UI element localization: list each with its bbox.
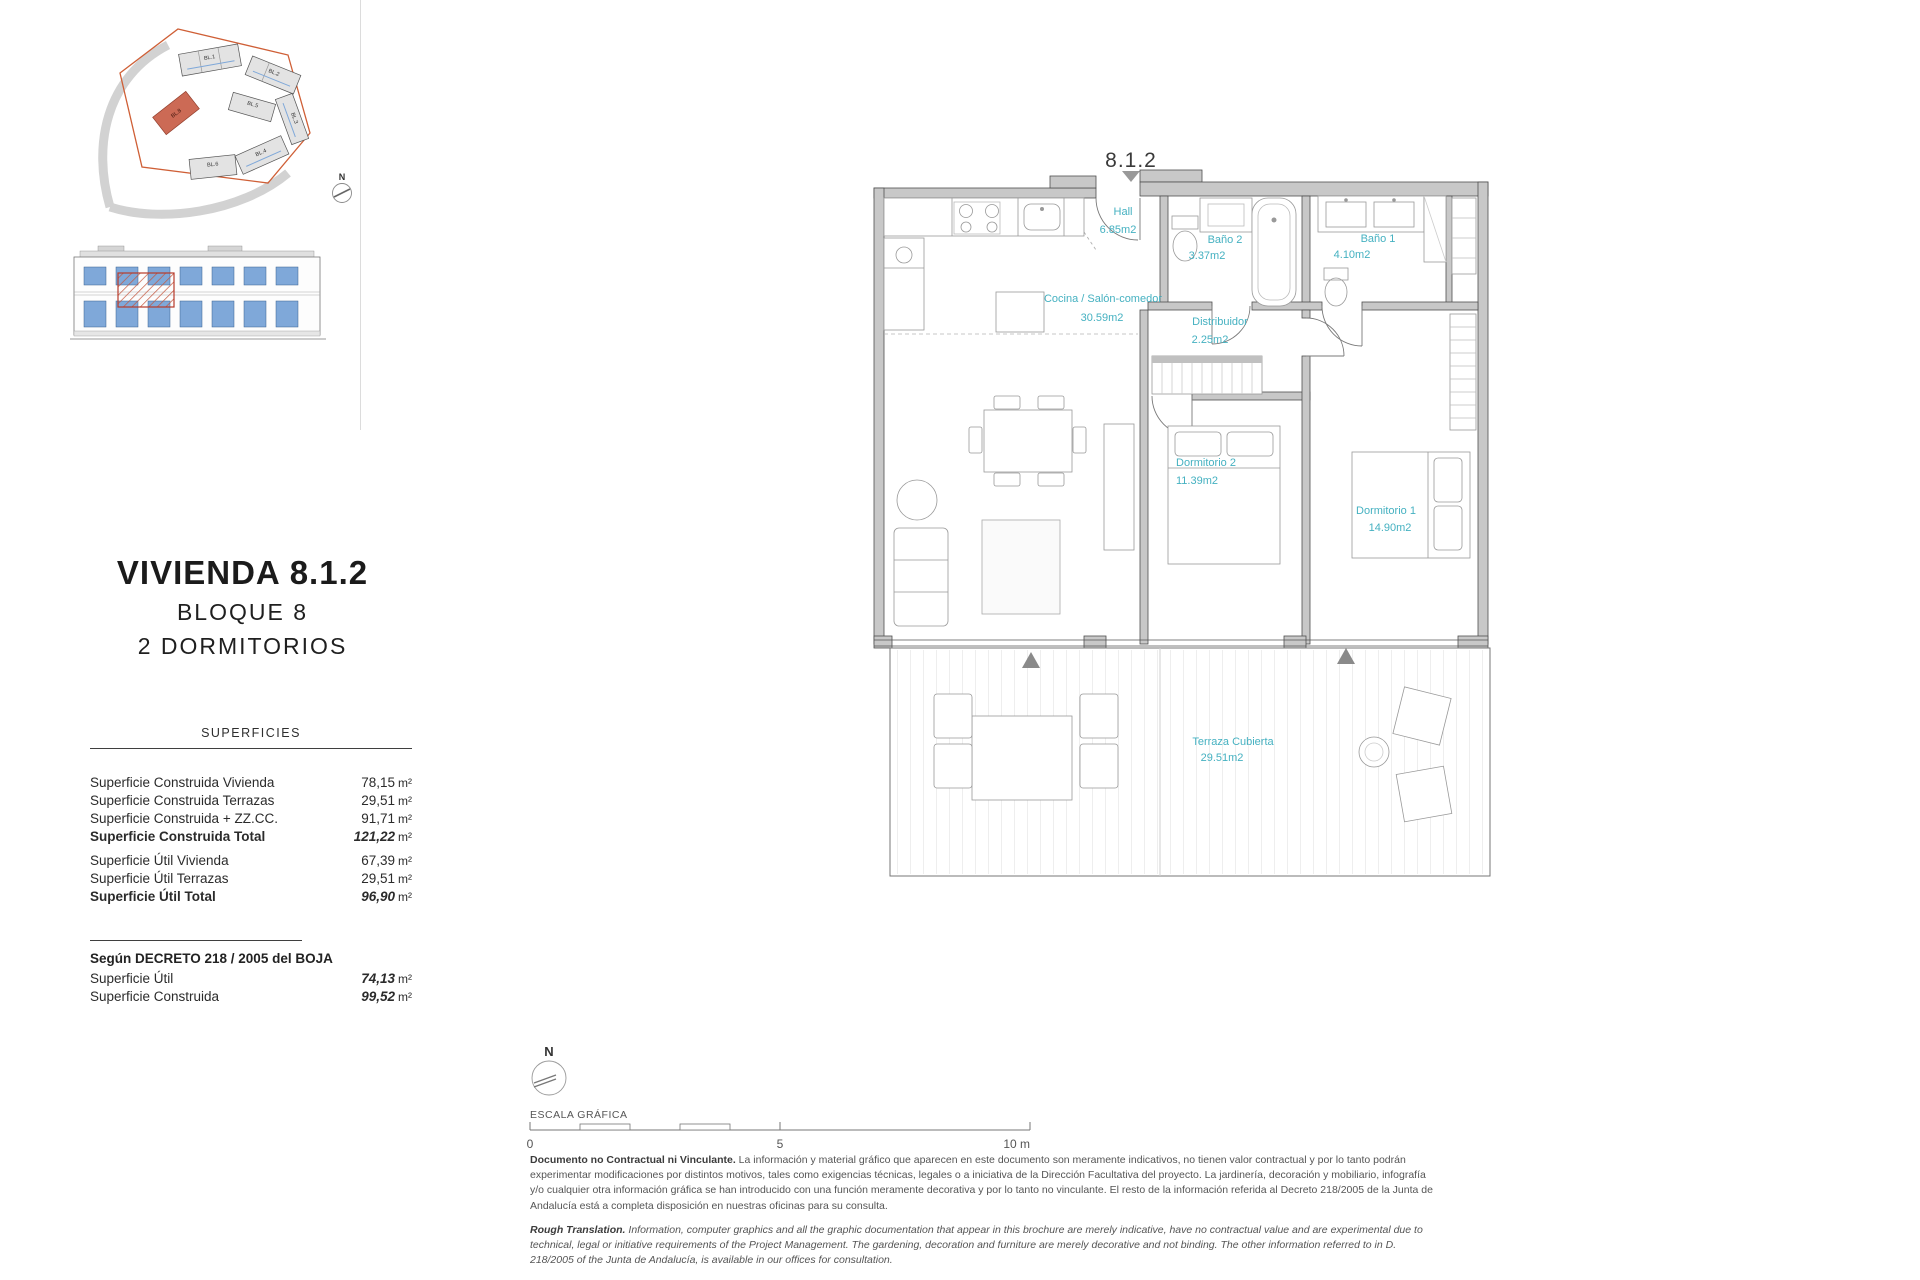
armchair-icon — [897, 480, 937, 520]
walls — [874, 170, 1488, 648]
room-label: Cocina / Salón-comedor — [1044, 293, 1162, 305]
scale-tick: 0 — [527, 1137, 534, 1151]
row-label: Superficie Construida Terrazas — [90, 793, 274, 808]
floor-plan: 8.1.2 — [660, 120, 1520, 900]
kitchen-island — [996, 292, 1044, 332]
decreto-section: Según DECRETO 218 / 2005 del BOJA Superf… — [90, 940, 412, 1007]
site-north-label: N — [339, 172, 346, 182]
scale-tick-labels: 0 5 10 m — [527, 1137, 1030, 1151]
row-value: 78,15m² — [361, 775, 412, 790]
room-label: Distribuidor — [1192, 316, 1248, 328]
row-label: Superficie Útil — [90, 971, 173, 986]
upper-windows — [84, 267, 298, 285]
row-label: Superficie Útil Vivienda — [90, 853, 229, 868]
superficies-header: SUPERFICIES — [90, 726, 412, 749]
page-title: VIVIENDA 8.1.2 — [85, 554, 400, 592]
site-north-compass: N — [333, 172, 352, 203]
room-area: 3.37m2 — [1189, 250, 1226, 262]
table-row: Superficie Construida + ZZ.CC. 91,71m² — [90, 811, 412, 829]
site-block-8-highlighted: BL.8 — [153, 91, 200, 134]
base-band — [74, 331, 320, 336]
sofa-icon — [894, 528, 948, 626]
title-block: VIVIENDA 8.1.2 BLOQUE 8 2 DORMITORIOS — [85, 554, 400, 660]
table-row: Superficie Construida Terrazas 29,51m² — [90, 793, 412, 811]
table-row: Superficie Útil Vivienda 67,39m² — [90, 853, 412, 871]
row-label: Superficie Construida Vivienda — [90, 775, 274, 790]
row-value: 29,51m² — [361, 871, 412, 886]
unit-marker-arrow-icon — [1122, 171, 1140, 182]
row-label: Superficie Construida — [90, 989, 219, 1004]
site-block-1: BL.1 — [179, 44, 242, 76]
row-value: 74,13m² — [361, 971, 412, 986]
scale-tick: 10 m — [1003, 1137, 1030, 1151]
bedrooms-subtitle: 2 DORMITORIOS — [85, 633, 400, 660]
disclaimer-spanish-lead: Documento no Contractual ni Vinculante. — [530, 1154, 736, 1166]
row-label: Superficie Útil Total — [90, 889, 216, 904]
decreto-title: Según DECRETO 218 / 2005 del BOJA — [90, 951, 412, 966]
toilet-icon — [1172, 216, 1198, 229]
table-row: Superficie Construida 99,52m² — [90, 989, 412, 1007]
scale-and-compass: N ESCALA GRÁFICA 0 5 10 m — [520, 1030, 1060, 1155]
room-area: 2.25m2 — [1192, 334, 1229, 346]
disclaimer-english: Rough Translation. Information, computer… — [530, 1223, 1440, 1269]
room-label: Baño 1 — [1361, 233, 1396, 245]
north-label: N — [544, 1044, 553, 1059]
row-value: 91,71m² — [361, 811, 412, 826]
superficies-section: SUPERFICIES Superficie Construida Vivien… — [90, 726, 412, 907]
scale-title: ESCALA GRÁFICA — [530, 1108, 627, 1121]
row-value: 121,22m² — [354, 829, 412, 844]
unit-marker-label: 8.1.2 — [1105, 149, 1157, 172]
block-subtitle: BLOQUE 8 — [85, 599, 400, 626]
north-compass: N — [532, 1044, 566, 1095]
divider — [90, 940, 302, 941]
room-area: 11.39m2 — [1176, 475, 1218, 487]
terrace — [890, 648, 1490, 876]
room-area: 6.85m2 — [1100, 224, 1137, 236]
superficies-table: Superficie Construida Vivienda 78,15m² S… — [90, 775, 412, 907]
disclaimer-spanish: Documento no Contractual ni Vinculante. … — [530, 1153, 1440, 1214]
site-block-label: BL.6 — [207, 161, 219, 168]
disclaimer-english-lead: Rough Translation. — [530, 1224, 625, 1236]
table-row: Superficie Útil Terrazas 29,51m² — [90, 871, 412, 889]
tv-console — [1104, 424, 1134, 550]
row-label: Superficie Útil Terrazas — [90, 871, 229, 886]
site-buildings: BL.1 BL.2 BL.3 BL.5 BL.4 BL.6 BL.8 — [153, 44, 309, 179]
row-value: 67,39m² — [361, 853, 412, 868]
table-row-total: Superficie Construida Total 121,22m² — [90, 829, 412, 847]
row-value: 99,52m² — [361, 989, 412, 1004]
site-plan: BL.1 BL.2 BL.3 BL.5 BL.4 BL.6 BL.8 — [80, 15, 380, 225]
room-label: Dormitorio 2 — [1176, 457, 1236, 469]
room-area: 4.10m2 — [1334, 249, 1371, 261]
room-label: Dormitorio 1 — [1356, 505, 1416, 517]
row-value: 96,90m² — [361, 889, 412, 904]
coffee-table — [982, 520, 1060, 614]
row-label: Superficie Construida + ZZ.CC. — [90, 811, 278, 826]
legal-disclaimers: Documento no Contractual ni Vinculante. … — [530, 1153, 1440, 1269]
highlighted-unit — [118, 273, 174, 307]
table-row: Superficie Construida Vivienda 78,15m² — [90, 775, 412, 793]
dining-set — [969, 396, 1086, 486]
bathtub-icon — [1252, 198, 1296, 306]
room-label: Hall — [1114, 206, 1133, 218]
scale-tick: 5 — [777, 1137, 784, 1151]
room-area: 30.59m2 — [1081, 312, 1124, 324]
row-value: 29,51m² — [361, 793, 412, 808]
room-label: Terraza Cubierta — [1192, 736, 1274, 748]
row-label: Superficie Construida Total — [90, 829, 265, 844]
table-row-total: Superficie Útil Total 96,90m² — [90, 889, 412, 907]
terrace-windows — [874, 640, 1488, 646]
room-area: 14.90m2 — [1369, 522, 1412, 534]
scale-bar — [530, 1122, 1030, 1130]
room-label: Baño 2 — [1208, 234, 1243, 246]
table-row: Superficie Útil 74,13m² — [90, 971, 412, 989]
site-block-6: BL.6 — [189, 155, 237, 180]
wardrobe — [1450, 314, 1476, 430]
site-block-5: BL.5 — [228, 92, 275, 121]
site-block-2: BL.2 — [245, 56, 301, 94]
lower-windows — [84, 301, 298, 327]
linen-closet — [1452, 198, 1476, 274]
room-area: 29.51m2 — [1201, 752, 1244, 764]
building-elevation — [68, 243, 328, 348]
